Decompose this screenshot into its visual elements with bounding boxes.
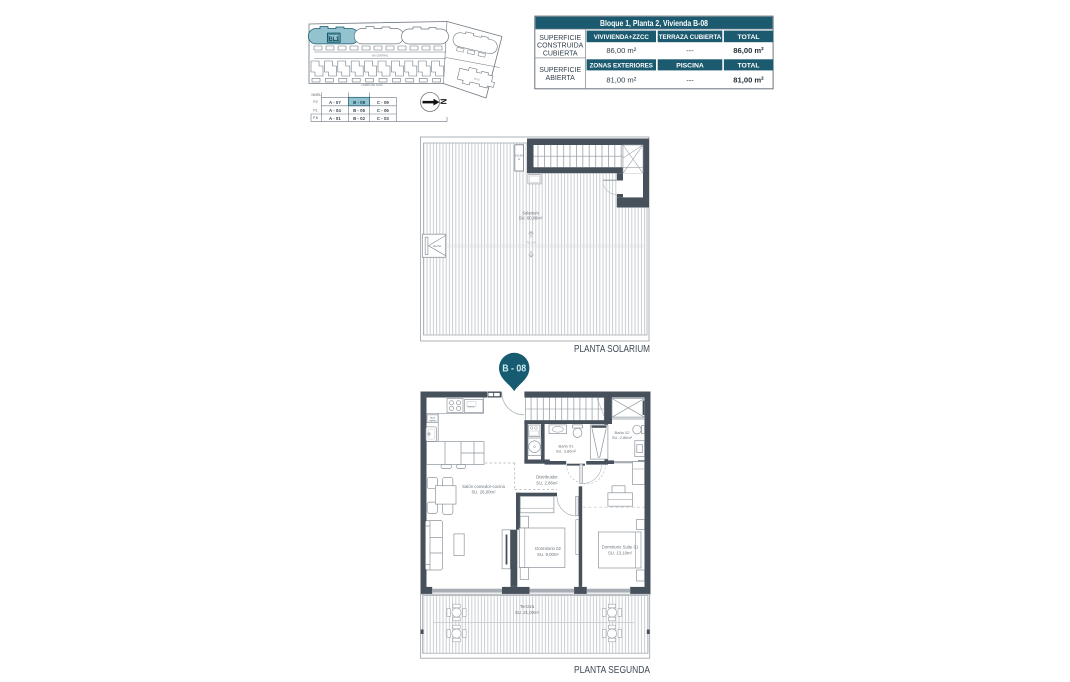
svg-text:C - 03: C - 03 — [377, 116, 390, 121]
svg-text:CUBIERTA: CUBIERTA — [543, 50, 578, 57]
svg-text:TOTAL: TOTAL — [737, 34, 759, 41]
svg-text:86,00 m²: 86,00 m² — [606, 46, 636, 55]
svg-text:P.2: P.2 — [313, 100, 318, 104]
svg-text:CAMPO DE GOLF: CAMPO DE GOLF — [361, 83, 383, 87]
svg-text:VIVIVIENDA+ZZCC: VIVIVIENDA+ZZCC — [594, 34, 650, 41]
svg-text:A - 04: A - 04 — [329, 108, 341, 113]
svg-text:A - 01: A - 01 — [329, 116, 341, 121]
svg-text:BL1: BL1 — [329, 36, 339, 42]
svg-text:VIA CENTRAL: VIA CENTRAL — [372, 54, 389, 58]
svg-text:Bloque 1, Planta 2, Vivienda B: Bloque 1, Planta 2, Vivienda B-08 — [600, 19, 708, 28]
svg-text:horno: horno — [468, 404, 475, 408]
svg-text:B - 05: B - 05 — [353, 108, 366, 113]
svg-text:SUPERFICIE: SUPERFICIE — [539, 35, 581, 42]
svg-text:---: --- — [686, 75, 694, 84]
svg-text:Salón comedor-cocina: Salón comedor-cocina — [462, 484, 505, 489]
svg-text:Terraza: Terraza — [520, 604, 535, 609]
svg-text:B - 08: B - 08 — [353, 100, 366, 105]
svg-text:SU. 2,86m²: SU. 2,86m² — [612, 435, 633, 440]
svg-text:ducha: ducha — [433, 244, 442, 248]
svg-text:P.B: P.B — [313, 116, 318, 120]
svg-text:B - 08: B - 08 — [502, 364, 526, 375]
svg-text:SU. 2,86m²: SU. 2,86m² — [536, 480, 558, 485]
svg-text:TERRAZA CUBIERTA: TERRAZA CUBIERTA — [659, 34, 722, 41]
svg-text:H.: H. — [518, 157, 521, 161]
svg-text:TOTAL: TOTAL — [737, 62, 759, 69]
svg-text:NIVEL: NIVEL — [312, 93, 322, 97]
svg-text:PLANTA SEGUNDA: PLANTA SEGUNDA — [574, 665, 650, 676]
svg-text:PLANTA SOLARIUM: PLANTA SOLARIUM — [574, 344, 650, 355]
svg-text:Distribuidor: Distribuidor — [536, 475, 558, 480]
svg-text:P.1: P.1 — [313, 109, 318, 113]
svg-text:Pte 1.5%: Pte 1.5% — [526, 242, 537, 245]
svg-text:SUPERFICIE: SUPERFICIE — [539, 67, 581, 74]
svg-text:81,00 m²: 81,00 m² — [733, 75, 764, 84]
svg-text:---: --- — [686, 46, 694, 55]
svg-text:vajillas: vajillas — [429, 418, 437, 422]
svg-text:81,00 m²: 81,00 m² — [606, 75, 636, 84]
svg-text:86,00 m²: 86,00 m² — [733, 46, 764, 55]
svg-text:Dormitorio Suite 01: Dormitorio Suite 01 — [602, 545, 639, 550]
svg-text:SU. 60,00m²: SU. 60,00m² — [519, 216, 543, 221]
svg-text:C - 06: C - 06 — [377, 108, 390, 113]
svg-text:SU. 9,00m²: SU. 9,00m² — [537, 552, 559, 557]
svg-text:ZONAS EXTERIORES: ZONAS EXTERIORES — [590, 62, 653, 69]
svg-text:SU. 13,10m²: SU. 13,10m² — [608, 550, 633, 555]
svg-text:ABIERTA: ABIERTA — [546, 75, 576, 82]
svg-text:SU. 3,86m²: SU. 3,86m² — [556, 449, 577, 454]
svg-text:SU. 21,00m²: SU. 21,00m² — [515, 610, 540, 615]
svg-text:N: N — [439, 99, 448, 105]
svg-text:B - 02: B - 02 — [353, 116, 366, 121]
svg-text:PISCINA: PISCINA — [676, 62, 704, 69]
svg-text:Dormitorio 02: Dormitorio 02 — [535, 546, 561, 551]
svg-text:SU. 26,00m²: SU. 26,00m² — [471, 490, 496, 495]
svg-text:CONSTRUIDA: CONSTRUIDA — [537, 43, 584, 50]
svg-text:A - 07: A - 07 — [329, 100, 341, 105]
svg-text:C - 09: C - 09 — [377, 100, 390, 105]
